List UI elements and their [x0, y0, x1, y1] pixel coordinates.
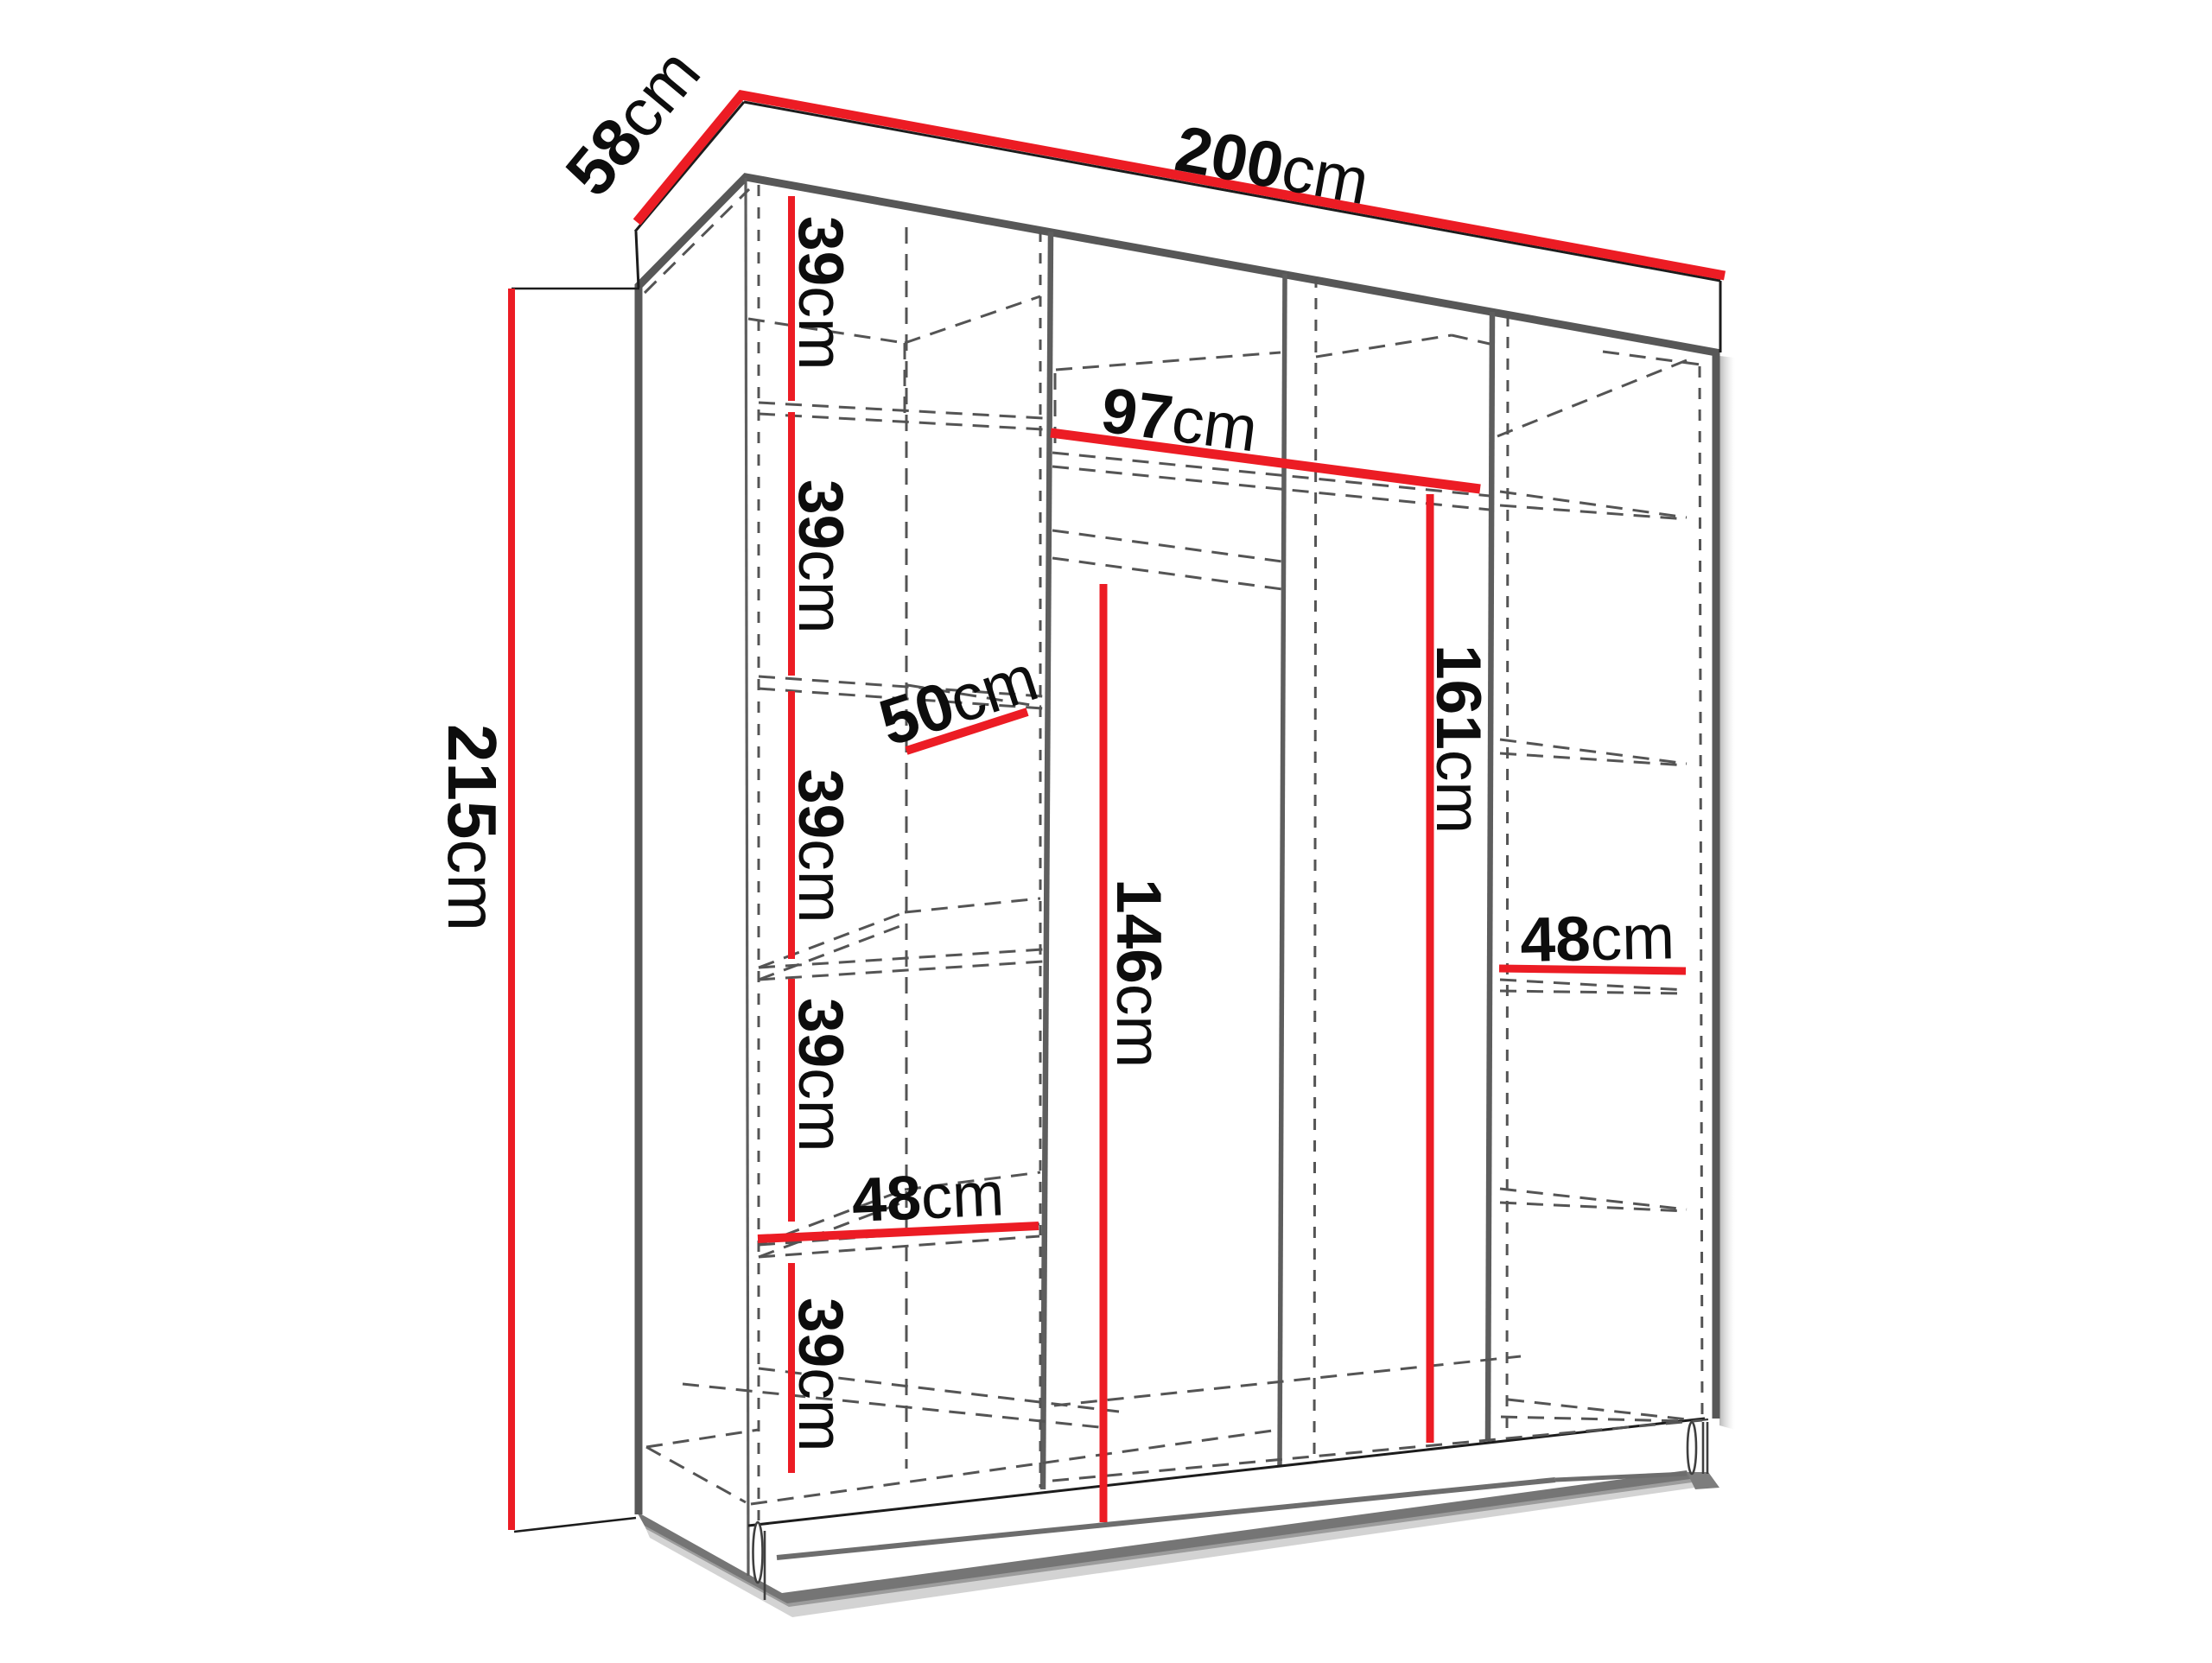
svg-text:161cm: 161cm — [1423, 644, 1493, 834]
svg-text:215cm: 215cm — [434, 724, 511, 931]
svg-text:39cm: 39cm — [785, 479, 855, 634]
svg-text:39cm: 39cm — [785, 1298, 855, 1452]
svg-text:39cm: 39cm — [785, 769, 855, 924]
svg-text:39cm: 39cm — [785, 216, 855, 371]
svg-text:39cm: 39cm — [785, 998, 855, 1152]
svg-text:48cm: 48cm — [1520, 902, 1675, 975]
svg-text:48cm: 48cm — [850, 1159, 1005, 1235]
svg-text:146cm: 146cm — [1103, 879, 1173, 1068]
